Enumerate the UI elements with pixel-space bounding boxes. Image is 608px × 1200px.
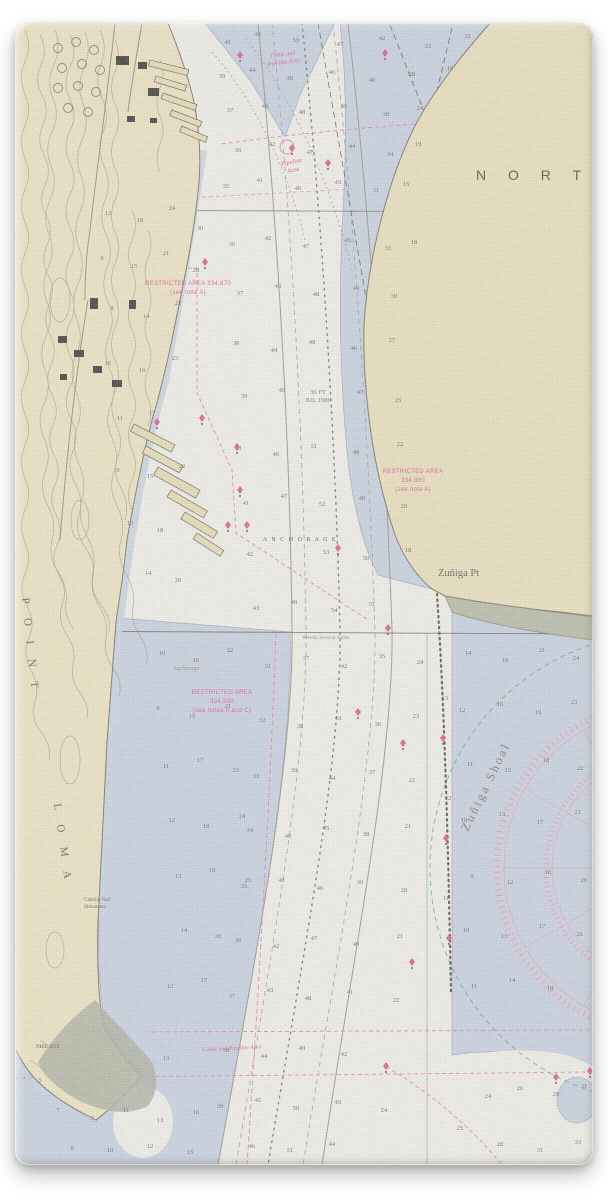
restricted-area-880-number: 334.880 — [210, 699, 234, 705]
restricted-area-870-label: RESTRICTED AREA 334.870 — [145, 281, 231, 287]
sounding: 17 — [539, 923, 546, 930]
sounding: 39 — [217, 1103, 224, 1110]
sounding: 13 — [501, 933, 508, 940]
sounding: 13 — [175, 873, 182, 880]
sounding: 42 — [247, 551, 254, 558]
restricted-area-860-label: RESTRICTED AREA — [383, 469, 444, 475]
sounding: 24 — [485, 1093, 492, 1100]
sounding: 46 — [329, 69, 336, 76]
sounding: 14 — [143, 313, 150, 320]
sounding: 42 — [265, 235, 272, 242]
sounding: 43 — [335, 179, 342, 186]
sounding: 23 — [413, 713, 420, 720]
sounding: 17 — [537, 819, 544, 826]
channel-depth-note-2: JUL 1986 — [305, 397, 331, 404]
sounding: 15 — [187, 1149, 194, 1156]
anchorage-label: Anchorage — [172, 666, 200, 672]
sounding: 46 — [249, 1143, 256, 1150]
sounding: 20 — [175, 577, 182, 584]
wrecks-label: Wrecks Several Subm — [302, 635, 349, 641]
sounding: 26 — [517, 1085, 524, 1092]
sounding: 22 — [397, 441, 404, 448]
sounding: 45 — [279, 387, 286, 394]
sounding: 33 — [575, 1139, 582, 1146]
sounding: 42 — [341, 1051, 348, 1058]
sounding: 42 — [273, 943, 280, 950]
beach-towel: 4145504742332139444946402816374348453824… — [15, 23, 593, 1165]
nike-site-label: NIKE SITE — [36, 1045, 60, 1050]
sounding: 25 — [457, 1125, 464, 1132]
sounding: 39 — [357, 879, 364, 886]
anchorage-caps-label: A N C H O R A G E — [263, 537, 337, 543]
restricted-area-870-note: (see note A) — [170, 290, 206, 296]
sounding: 18 — [502, 657, 509, 664]
sounding: 15 — [147, 473, 154, 480]
sounding: 12 — [127, 520, 134, 527]
sounding: 22 — [227, 647, 234, 654]
sounding: 48 — [313, 291, 320, 298]
sounding: 48 — [305, 995, 312, 1002]
sounding: 45 — [345, 237, 352, 244]
sounding: 37 — [369, 769, 376, 776]
sounding: 21 — [539, 647, 546, 654]
sounding: 12 — [167, 983, 174, 990]
sounding: 18 — [405, 547, 412, 554]
sounding: 16 — [447, 65, 454, 72]
sounding: 46 — [351, 345, 358, 352]
sounding: 25 — [395, 397, 402, 404]
sounding: 23 — [233, 767, 240, 774]
sounding: 33 — [425, 43, 432, 50]
sounding: 44 — [329, 1141, 336, 1148]
sounding: 10 — [107, 1147, 114, 1154]
sounding: 21 — [405, 823, 412, 830]
sounding: 37 — [227, 107, 234, 114]
sounding: 48 — [353, 449, 360, 456]
sounding: 39 — [241, 393, 248, 400]
sounding: 17 — [149, 410, 156, 417]
sounding: 22 — [393, 997, 400, 1004]
sounding: 9 — [100, 255, 103, 262]
sounding: 48 — [299, 109, 306, 116]
sounding: 17 — [197, 757, 204, 764]
sounding: 11 — [471, 983, 477, 990]
sounding: 32 — [259, 717, 266, 724]
sounding: 15 — [505, 767, 512, 774]
sounding: 43 — [335, 1099, 342, 1106]
sounding: 27 — [389, 337, 396, 344]
sounding: 40 — [353, 941, 360, 948]
sounding: 16 — [139, 367, 146, 374]
sounding: 20 — [581, 877, 588, 884]
sounding: 33 — [385, 245, 392, 252]
sounding: 21 — [575, 809, 582, 816]
sounding: 39 — [291, 767, 298, 774]
sounding: 44 — [353, 285, 360, 292]
product-photo: 4145504742332139444946402816374348453824… — [0, 0, 608, 1200]
sounding: 18 — [547, 985, 554, 992]
sounding: 16 — [193, 657, 200, 664]
sounding: 44 — [349, 143, 356, 150]
sounding: 42 — [269, 141, 276, 148]
sounding: 45 — [323, 825, 330, 832]
sounding: 38 — [383, 111, 390, 118]
sounding: 17 — [201, 977, 208, 984]
sounding: 35 — [241, 883, 248, 890]
sounding: 36 — [235, 937, 242, 944]
sounding: 51 — [287, 1147, 294, 1154]
sounding: 36 — [235, 147, 242, 154]
sounding: 18 — [203, 823, 210, 830]
sounding: 38 — [233, 340, 240, 347]
sounding: 18 — [411, 239, 418, 246]
sounding: 20 — [215, 933, 222, 940]
sounding: 22 — [179, 463, 186, 470]
sounding: 35 — [379, 653, 386, 660]
sounding: 52 — [319, 501, 326, 508]
sounding: 12 — [105, 210, 112, 217]
sounding: 49 — [299, 1045, 306, 1052]
sounding: 54 — [331, 607, 338, 614]
nautical-chart: 4145504742332139444946402816374348453824… — [15, 23, 593, 1165]
sounding: 44 — [271, 347, 278, 354]
sounding: 47 — [337, 41, 344, 48]
sounding: 16 — [545, 869, 552, 876]
sounding: 13 — [499, 811, 506, 818]
sounding: 19 — [535, 709, 542, 716]
sounding: 9 — [470, 873, 473, 880]
sounding: 42 — [379, 35, 386, 42]
sounding: 47 — [281, 493, 288, 500]
sounding: 31 — [373, 187, 380, 194]
shoal-blob — [557, 1077, 593, 1123]
sounding: 39 — [219, 73, 226, 80]
sounding: 24 — [169, 205, 176, 212]
channel-depth-note-1: 36 FT — [310, 389, 326, 396]
sounding: 31 — [581, 1083, 588, 1090]
sounding: 41 — [243, 500, 250, 507]
sounding: 13 — [442, 695, 449, 702]
sounding: 12 — [459, 707, 466, 714]
sounding: 49 — [287, 75, 294, 82]
sounding: 31 — [537, 1147, 544, 1154]
sounding: 44 — [261, 1053, 268, 1060]
sounding: 30 — [391, 293, 398, 300]
restricted-area-880-note: (see notes A and C) — [193, 708, 251, 714]
sounding: 21 — [465, 33, 472, 40]
sounding: 20 — [401, 503, 408, 510]
sounding: 37 — [237, 290, 244, 297]
sounding: 23 — [571, 699, 578, 706]
sounding: 49 — [309, 339, 316, 346]
sounding: 9 — [116, 467, 119, 474]
sounding: 43 — [335, 715, 342, 722]
sounding: 8 — [70, 1145, 73, 1152]
sounding: 16 — [193, 1109, 200, 1116]
zuniga-shoal-area — [452, 598, 593, 1072]
sounding: 40 — [369, 77, 376, 84]
sounding: 43 — [262, 103, 269, 110]
sounding: 31 — [265, 663, 272, 670]
sounding: 10 — [463, 927, 470, 934]
sounding: 41 — [279, 877, 286, 884]
sounding: 37 — [229, 993, 236, 1000]
sounding: 28 — [497, 1141, 504, 1148]
sounding: 38 — [363, 831, 370, 838]
sounding: 23 — [172, 355, 179, 362]
sounding: 18 — [543, 757, 550, 764]
sounding: 24 — [417, 659, 424, 666]
sounding: 19 — [209, 867, 216, 874]
sounding: 12 — [507, 879, 514, 886]
sounding: 46 — [273, 451, 280, 458]
sounding: 50 — [363, 555, 370, 562]
sounding: 36 — [229, 241, 236, 248]
sounding: 30 — [197, 225, 204, 232]
sounding: 51 — [311, 443, 318, 450]
monument-label-2: Monument — [84, 905, 107, 910]
sounding: 21 — [163, 250, 170, 257]
sounding: 5 — [38, 1077, 41, 1084]
restricted-area-880-label: RESTRICTED AREA — [192, 690, 253, 696]
sounding: 53 — [323, 549, 330, 556]
sounding: 41 — [257, 177, 264, 184]
sounding: 15 — [403, 181, 410, 188]
sounding: 43 — [267, 987, 274, 994]
sounding: 13 — [157, 1117, 164, 1124]
sounding: 22 — [577, 765, 584, 772]
sounding: 43 — [253, 605, 260, 612]
sounding: 47 — [357, 389, 364, 396]
sounding: 41 — [347, 989, 354, 996]
sounding: 45 — [255, 1097, 262, 1104]
sounding: 10 — [105, 360, 112, 367]
sounding: 36 — [375, 721, 382, 728]
sounding: 40 — [285, 833, 292, 840]
sounding: 14 — [465, 650, 472, 657]
sounding: 16 — [497, 701, 504, 708]
sounding: 11 — [123, 1107, 129, 1114]
sounding: 38 — [297, 723, 304, 730]
sounding: 33 — [253, 773, 260, 780]
sounding: 46 — [295, 185, 302, 192]
sounding: 8 — [110, 305, 113, 312]
sounding: 44 — [329, 775, 336, 782]
sounding: 11 — [467, 761, 473, 768]
zuniga-pt-label: Zuñiga Pt — [438, 568, 479, 579]
sounding: 28 — [409, 71, 416, 78]
sounding: 14 — [145, 570, 152, 577]
sounding: 11 — [163, 763, 169, 770]
sounding: 9 — [90, 1115, 93, 1122]
sounding: 50 — [293, 1105, 300, 1112]
sounding: 29 — [553, 1091, 560, 1098]
sounding: 49 — [291, 599, 298, 606]
sounding: 24 — [417, 105, 424, 112]
sounding: 21 — [577, 931, 584, 938]
sounding: 50 — [293, 37, 300, 44]
sounding: 41 — [225, 39, 232, 46]
sounding: 14 — [181, 927, 188, 934]
sounding: 15 — [131, 263, 138, 270]
sounding: 14 — [509, 977, 516, 984]
sounding: 42 — [341, 663, 348, 670]
sounding: 21 — [397, 933, 404, 940]
sounding: 43 — [275, 283, 282, 290]
restricted-area-860-number: 334.860 — [401, 478, 425, 484]
sounding: 35 — [223, 183, 230, 190]
sounding: 34 — [247, 827, 254, 834]
sounding: 11 — [117, 415, 123, 422]
sounding: 20 — [401, 887, 408, 894]
sounding: 12 — [147, 1143, 154, 1150]
monument-label-1: Cabrillo Natl — [84, 898, 111, 903]
sounding: 15 — [189, 713, 196, 720]
sounding: 24 — [381, 1107, 388, 1114]
sounding: 47 — [303, 243, 310, 250]
sounding: 44 — [249, 67, 256, 74]
sounding: 45 — [341, 103, 348, 110]
sounding: 19 — [415, 141, 422, 148]
sounding: 47 — [311, 935, 318, 942]
sounding: 51 — [369, 601, 376, 608]
sounding: 34 — [387, 151, 394, 158]
sounding: 37 — [303, 655, 310, 662]
sounding: 12 — [169, 817, 176, 824]
north-island-label: N O R T H — [476, 167, 593, 183]
sounding: 47 — [307, 149, 314, 156]
sounding: 9 — [156, 705, 159, 712]
restricted-area-860-note: (see note A) — [395, 487, 431, 493]
sounding: 46 — [317, 885, 324, 892]
sounding: 45 — [255, 31, 262, 38]
sounding: 11 — [443, 895, 449, 902]
sounding: 24 — [573, 655, 580, 662]
sounding: 10 — [159, 650, 166, 657]
sounding: 49 — [359, 495, 366, 502]
sounding: 12 — [445, 795, 452, 802]
sounding: 18 — [157, 527, 164, 534]
sounding: 28 — [193, 267, 200, 274]
sounding: 22 — [175, 300, 182, 307]
sounding: 24 — [239, 813, 246, 820]
sounding: 13 — [163, 1055, 170, 1062]
sounding: 18 — [137, 217, 144, 224]
sounding: 22 — [409, 777, 416, 784]
